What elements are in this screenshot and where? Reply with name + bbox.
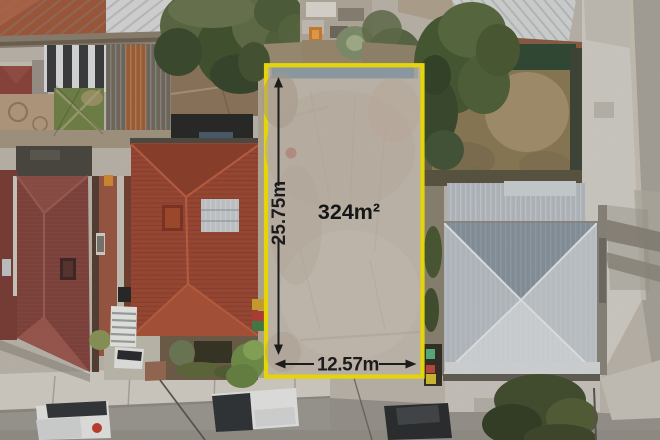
svg-text:25.75m: 25.75m	[269, 181, 290, 245]
svg-text:324m²: 324m²	[318, 200, 380, 224]
svg-text:12.57m: 12.57m	[317, 355, 379, 376]
